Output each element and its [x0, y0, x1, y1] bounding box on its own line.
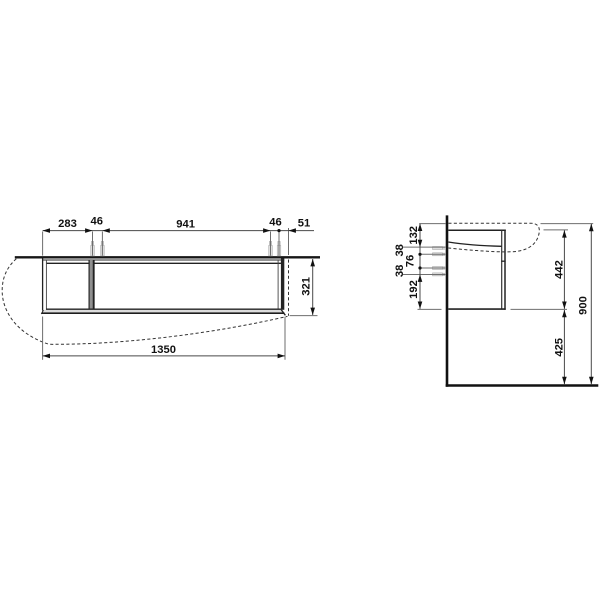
svg-text:283: 283 — [58, 218, 77, 230]
svg-text:900: 900 — [577, 296, 589, 315]
svg-text:425: 425 — [554, 338, 566, 357]
svg-text:46: 46 — [269, 216, 281, 228]
svg-text:38: 38 — [394, 265, 406, 277]
svg-text:321: 321 — [300, 277, 312, 296]
svg-text:46: 46 — [90, 216, 102, 228]
svg-text:941: 941 — [176, 218, 195, 230]
svg-text:1350: 1350 — [151, 344, 176, 356]
svg-text:132: 132 — [408, 226, 420, 245]
svg-text:442: 442 — [553, 260, 565, 279]
svg-text:38: 38 — [394, 244, 406, 256]
svg-text:192: 192 — [408, 280, 420, 299]
svg-text:51: 51 — [298, 218, 310, 230]
svg-text:76: 76 — [405, 255, 417, 267]
